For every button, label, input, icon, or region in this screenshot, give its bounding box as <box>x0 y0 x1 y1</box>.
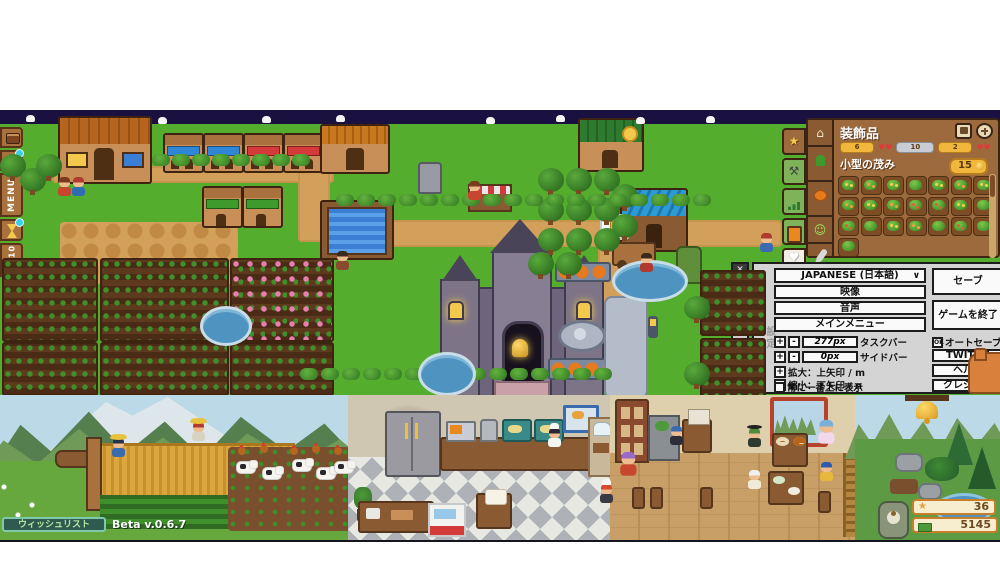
bush-item-icon <box>932 180 945 190</box>
villager <box>336 248 350 271</box>
decor-tree <box>566 168 592 192</box>
door <box>94 148 114 180</box>
mixer <box>480 419 498 442</box>
inventory-slot-bush[interactable] <box>906 176 927 195</box>
inventory-slot-bush[interactable] <box>861 176 882 195</box>
decor-bush <box>357 194 375 206</box>
farm-plot <box>100 342 229 396</box>
decor-bush <box>252 154 270 166</box>
hearts-icon: ♥♥ <box>878 143 892 152</box>
bush-item-icon <box>909 221 922 231</box>
roof <box>60 118 150 144</box>
tab-pumpkin[interactable] <box>808 190 832 217</box>
farm-plot <box>2 258 98 342</box>
inventory-slot-bush[interactable] <box>951 217 972 236</box>
npc-head <box>59 177 70 187</box>
villager <box>192 419 206 442</box>
cat-visitor <box>26 115 35 122</box>
sidebar-size-row: + - 0px サイドバー <box>774 350 908 364</box>
lodge-green <box>202 186 243 228</box>
always-on-top: 常に一番上に表示 <box>774 380 863 394</box>
inventory-slot-bush[interactable] <box>951 176 972 195</box>
npc-body <box>548 438 561 447</box>
inventory-stats-row: 6 ♥♥ 10 2 ♥♥ <box>840 142 998 153</box>
bush-item-icon <box>842 221 855 231</box>
bell <box>916 401 938 419</box>
audio-button[interactable]: 音声 <box>774 301 926 315</box>
npc-head <box>601 484 612 494</box>
tab-star[interactable]: ★ <box>782 128 806 155</box>
black-hat <box>747 425 762 429</box>
decor-bush <box>594 368 612 380</box>
stone-path <box>604 296 648 397</box>
npc-body <box>748 438 761 447</box>
inventory-grid <box>838 176 996 258</box>
npc-head <box>549 428 560 438</box>
rock <box>918 483 942 500</box>
npc-head <box>337 251 348 261</box>
straw-hat <box>110 435 127 440</box>
npc-body <box>820 472 833 481</box>
farm-plot <box>230 342 334 396</box>
dining-table <box>768 471 804 505</box>
chair <box>818 491 831 513</box>
chef-hat <box>602 479 611 485</box>
beta-version-label: Beta v.0.6.7 <box>112 518 186 531</box>
chicken <box>238 447 246 455</box>
taskbar-height-value[interactable]: 277px <box>802 336 858 348</box>
round-bush <box>925 457 959 481</box>
villager <box>72 174 86 197</box>
bush-item-icon <box>977 180 990 190</box>
star-count: 36 <box>974 500 989 513</box>
tab-anvil[interactable]: ⚒ <box>782 158 806 185</box>
sidebar-label: サイドバー <box>860 350 908 364</box>
decor-bush <box>567 194 585 206</box>
villager <box>112 435 126 458</box>
decor-bush <box>172 154 190 166</box>
decor-bush <box>152 154 170 166</box>
sidebar-increase-button[interactable]: + <box>774 351 786 363</box>
inventory-slot-bush[interactable] <box>883 217 904 236</box>
decor-bush <box>552 368 570 380</box>
npc-head <box>73 177 84 187</box>
decor-bush <box>272 154 290 166</box>
villager <box>620 448 638 477</box>
wishlist-badge[interactable]: ウィッシュリスト <box>2 517 106 532</box>
decor-bush <box>192 154 210 166</box>
villager <box>748 467 762 490</box>
chair <box>700 487 713 509</box>
npc-body <box>748 480 761 489</box>
book-icon <box>787 226 802 243</box>
decor-bush <box>672 194 690 206</box>
npc-head <box>761 233 772 243</box>
rock <box>895 453 923 472</box>
pond <box>418 352 476 396</box>
decor-bush <box>525 194 543 206</box>
chart-icon <box>788 202 800 210</box>
hearts-icon: ♥♥ <box>976 143 990 152</box>
decor-bush <box>609 194 627 206</box>
bush-item-icon <box>977 221 990 231</box>
inventory-slot-bush[interactable] <box>861 217 882 236</box>
inventory-category-tabs: ⌂ ☺ <box>808 120 834 256</box>
decor-bush <box>342 368 360 380</box>
inventory-body: ⌂ ☺ 装飾品 6 ♥♥ 10 2 ♥♥ 小型の茂み 15 <box>806 118 1000 258</box>
chest-icon <box>6 133 20 144</box>
decor-tree <box>566 228 592 252</box>
villager <box>760 230 774 253</box>
sidebar-decrease-button[interactable]: - <box>788 351 800 363</box>
plant-icon <box>816 155 825 166</box>
star-icon: ★ <box>789 134 800 148</box>
stat-chip: 2 <box>938 142 972 153</box>
timer-button[interactable] <box>0 219 23 241</box>
zoom-in-key[interactable]: + <box>774 366 786 378</box>
language-dropdown[interactable]: JAPANESE (日本語)∨ <box>774 268 926 283</box>
window <box>122 152 144 168</box>
inventory-slot-bush[interactable] <box>861 197 882 216</box>
npc-body <box>640 263 653 272</box>
dining-table <box>772 433 808 467</box>
lodge-red <box>283 133 324 173</box>
cow <box>316 467 336 480</box>
tab-birdhouse[interactable]: ⌂ <box>808 120 832 147</box>
npc-body <box>192 432 205 441</box>
decor-bush <box>489 368 507 380</box>
lodge-green <box>242 186 283 228</box>
window <box>66 152 88 168</box>
npc-body <box>468 191 481 200</box>
money-counter: 5145 <box>912 517 998 533</box>
birdhouse-icon: ⌂ <box>816 126 824 140</box>
villager <box>670 423 684 446</box>
cow <box>292 459 312 472</box>
chicken <box>260 445 268 453</box>
npc-head <box>641 253 652 263</box>
decor-bush <box>363 368 381 380</box>
quit-button[interactable]: ゲームを終了 <box>932 300 1000 330</box>
castle-window <box>448 301 464 320</box>
scrollbar-thumb[interactable] <box>990 175 995 197</box>
npc-head <box>622 452 636 465</box>
item-price: 15 <box>958 160 972 171</box>
pine-tree <box>968 447 996 489</box>
decor-tree <box>528 252 554 276</box>
bush-item-icon <box>954 200 967 210</box>
decor-bush <box>531 368 549 380</box>
npc-head <box>749 428 760 438</box>
decor-bush <box>546 194 564 206</box>
villager <box>600 481 614 504</box>
taskbar-decrease-button[interactable]: - <box>788 336 800 348</box>
decor-bush <box>573 368 591 380</box>
bush-item-icon <box>932 221 945 231</box>
coin-icon <box>976 162 984 170</box>
prep-bowl <box>502 419 532 442</box>
notification-dot <box>15 218 24 227</box>
npc-body <box>600 494 613 503</box>
inventory-slot-bush[interactable] <box>906 197 927 216</box>
storage-button[interactable] <box>0 127 23 148</box>
bush-item-icon <box>842 180 855 190</box>
npc-head <box>821 462 832 472</box>
decor-bush <box>300 368 318 380</box>
counter <box>440 437 610 471</box>
farm-plot <box>700 270 766 336</box>
save-button[interactable]: セーブ <box>932 268 1000 295</box>
decor-bush <box>321 368 339 380</box>
stat-chip: 6 <box>840 142 874 153</box>
inventory-slot-bush[interactable] <box>928 197 949 216</box>
decor-tree <box>684 296 710 320</box>
fountain <box>558 320 606 352</box>
chair <box>650 487 663 509</box>
bush-item-icon <box>954 221 967 231</box>
hourglass-icon <box>7 224 17 238</box>
storage-box-button[interactable] <box>955 123 972 139</box>
smiley-icon: ☺ <box>814 223 827 237</box>
decor-bush <box>212 154 230 166</box>
sunflower-house <box>578 118 644 172</box>
cat-visitor <box>636 117 645 124</box>
bush-item-icon <box>864 221 877 231</box>
bush-item-icon <box>887 180 900 190</box>
autosave-row: OK オートセーブ <box>932 335 1000 349</box>
star-counter: ★36 <box>912 499 996 515</box>
lantern <box>648 316 658 338</box>
cafe-strip: ウィッシュリスト Beta v.0.6.7 ★36 5145 <box>0 395 1000 542</box>
decor-bush <box>420 194 438 206</box>
star-icon: ★ <box>918 501 927 513</box>
tab-book[interactable] <box>782 218 806 245</box>
sideboard <box>682 419 712 453</box>
decor-bush <box>336 194 354 206</box>
chicken <box>334 447 342 455</box>
bush-item-icon <box>887 200 900 210</box>
npc-body <box>336 261 349 270</box>
inventory-slot-bush[interactable] <box>928 176 949 195</box>
tab-plant[interactable] <box>808 155 832 182</box>
npc-body <box>112 448 125 457</box>
flower-icon <box>887 511 900 524</box>
straw-hat <box>190 419 207 424</box>
pumpkin-icon <box>814 190 827 201</box>
npc-body <box>620 464 636 475</box>
npc-head <box>749 470 760 480</box>
language-value: JAPANESE (日本語) <box>801 270 898 281</box>
inventory-slot-bush[interactable] <box>883 197 904 216</box>
decor-tree <box>612 214 638 238</box>
villager <box>820 459 834 482</box>
inventory-slot-bush[interactable] <box>838 217 859 236</box>
decor-tree <box>684 362 710 386</box>
villager <box>818 416 836 445</box>
cow <box>236 461 256 474</box>
bush-item-icon <box>842 200 855 210</box>
decor-bush <box>588 194 606 206</box>
selected-item-name: 小型の茂み <box>840 156 895 172</box>
inventory-slot-bush[interactable] <box>883 176 904 195</box>
stat-chip: 10 <box>896 142 934 153</box>
fridge <box>385 411 441 477</box>
sunflower-icon <box>622 126 638 142</box>
inventory-title: 装飾品 <box>840 123 879 142</box>
npc-body <box>760 243 773 252</box>
chicken <box>290 447 298 455</box>
decor-bush <box>378 194 396 206</box>
inventory-slot-bush[interactable] <box>906 217 927 236</box>
cat-visitor <box>262 116 271 123</box>
money-icon <box>918 523 932 532</box>
decor-bush <box>399 194 417 206</box>
npc-body <box>818 432 834 443</box>
cat-mascot <box>968 352 1000 394</box>
tab-smiley[interactable]: ☺ <box>808 217 832 244</box>
npc-head <box>820 420 834 433</box>
cow <box>262 467 282 480</box>
always-on-top-label: 常に一番上に表示 <box>787 380 863 394</box>
cow <box>334 461 354 474</box>
farm-plot <box>2 342 98 396</box>
inventory-slot-bush[interactable] <box>838 197 859 216</box>
npc-head <box>469 181 480 191</box>
dirt-patch <box>890 479 918 494</box>
lodge-blue <box>163 133 204 173</box>
zoom-in-label: 拡大：上矢印 / m <box>788 365 865 379</box>
cake-table <box>476 493 512 529</box>
inventory-slot-bush[interactable] <box>951 197 972 216</box>
cat-visitor <box>556 115 565 122</box>
npc-body <box>72 187 85 196</box>
tab-stats[interactable] <box>782 188 806 215</box>
inventory-slot-bush[interactable] <box>838 176 859 195</box>
decor-tree <box>556 252 582 276</box>
lodge-red <box>243 133 284 173</box>
chicken <box>312 445 320 453</box>
statue <box>418 162 442 194</box>
prep-table <box>358 501 434 533</box>
item-price-chip: 15 <box>949 158 988 175</box>
decor-bush <box>510 368 528 380</box>
farm-plot <box>700 338 766 397</box>
chef-hat <box>550 423 559 429</box>
inventory-scrollbar[interactable] <box>989 174 996 258</box>
villager <box>548 425 562 448</box>
inventory-panel: ★ ⚒ ♥ ⌂ ☺ 装飾品 6 ♥♥ 10 <box>780 118 1000 258</box>
decor-bush <box>483 194 501 206</box>
animal-pen <box>228 447 350 531</box>
settings-panel: 設定 JAPANESE (日本語)∨ 映像 音声 メインメニュー + - 277… <box>752 262 1000 394</box>
chevron-down-icon: ∨ <box>913 270 920 282</box>
decor-bush <box>651 194 669 206</box>
always-on-top-checkbox[interactable] <box>774 382 785 393</box>
microwave <box>446 421 476 442</box>
main-menu-button[interactable]: メインメニュー <box>774 317 926 332</box>
villager <box>748 425 762 448</box>
bush-item-icon <box>932 200 945 210</box>
villager <box>58 174 72 197</box>
cat-visitor <box>336 115 345 122</box>
bush-item-icon <box>864 200 877 210</box>
bush-item-icon <box>909 180 922 190</box>
inventory-slot-bush[interactable] <box>838 238 859 257</box>
menu-button-label: MENU <box>7 178 17 212</box>
decor-bush <box>693 194 711 206</box>
inventory-slot-bush[interactable] <box>928 217 949 236</box>
taskbar-label: タスクバー <box>860 335 907 349</box>
cat-visitor <box>706 116 715 123</box>
decor-bush <box>292 154 310 166</box>
decor-bush <box>232 154 250 166</box>
video-button[interactable]: 映像 <box>774 285 926 299</box>
lodge-blue <box>203 133 244 173</box>
flower-menu-button[interactable] <box>878 501 909 539</box>
decor-tree <box>538 228 564 252</box>
castle-window <box>576 301 592 320</box>
pond <box>200 306 252 346</box>
bush-item-icon <box>864 180 877 190</box>
npc-body <box>670 436 683 445</box>
decor-bush <box>384 368 402 380</box>
bush-item-icon <box>842 241 855 251</box>
bush-item-icon <box>977 200 990 210</box>
decor-tree <box>538 168 564 192</box>
anvil-icon: ⚒ <box>789 164 800 178</box>
sidebar-width-value[interactable]: 0px <box>802 351 858 363</box>
decor-bush <box>441 194 459 206</box>
taskbar-increase-button[interactable]: + <box>774 336 786 348</box>
cat-visitor <box>158 117 167 124</box>
money-count: 5145 <box>960 518 991 531</box>
world-strip: MENU 10/10 ★ ⚒ ♥ ⌂ ☺ 装飾品 <box>0 110 1000 397</box>
bush-item-icon <box>954 180 967 190</box>
move-panel-button[interactable] <box>976 123 993 139</box>
desktop: MENU 10/10 ★ ⚒ ♥ ⌂ ☺ 装飾品 <box>0 0 1000 563</box>
autosave-checkbox[interactable]: OK <box>932 337 943 348</box>
chair <box>632 487 645 509</box>
zoom-in-row: + 拡大：上矢印 / m <box>774 365 865 379</box>
villager <box>640 250 654 273</box>
npc-head <box>671 426 682 436</box>
bush-item-icon <box>909 200 922 210</box>
pool-building <box>320 200 394 260</box>
decor-bush <box>504 194 522 206</box>
taskbar-size-row: + - 277px タスクバー <box>774 335 907 349</box>
bush-item-icon <box>887 221 900 231</box>
cooler-box <box>428 503 466 537</box>
autosave-label: オートセーブ <box>945 335 1000 349</box>
castle-bell <box>512 339 528 357</box>
decor-bush <box>630 194 648 206</box>
barn <box>320 124 390 174</box>
villager <box>468 178 482 201</box>
cat-visitor <box>486 117 495 124</box>
npc-body <box>58 187 71 196</box>
